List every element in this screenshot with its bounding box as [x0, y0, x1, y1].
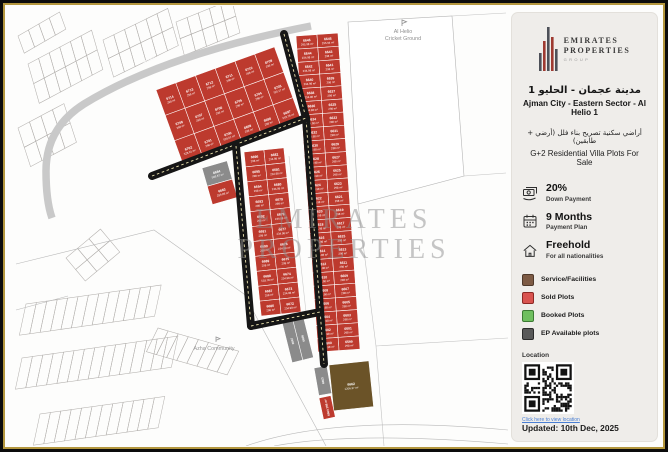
cricket-ground-label: Cricket Ground: [385, 36, 421, 42]
plot-area: 298 m²: [327, 93, 336, 98]
plot-area: 298 m²: [330, 133, 339, 138]
parcel-boundary: [348, 16, 464, 204]
feature-label: Payment Plan: [546, 224, 592, 231]
location-link[interactable]: Click here to view location: [522, 417, 647, 423]
parcel-boundary: [376, 338, 508, 346]
plot-area: 298 m²: [339, 264, 348, 269]
strip-right: 6646295.98 m²6645295.94 m²6644234.98 m²6…: [296, 33, 360, 352]
plot-area: 295.94 m²: [322, 40, 335, 45]
qr-code: [522, 362, 574, 414]
legend-label: Service/Facilities: [541, 276, 596, 283]
legend-item: Sold Plots: [522, 292, 647, 304]
outline-plot-grid: [18, 12, 66, 53]
plot-area: 298 m²: [326, 80, 335, 85]
plot-area: 298 m²: [325, 54, 334, 59]
legend-swatch: [522, 310, 534, 322]
legend-item: Booked Plots: [522, 310, 647, 322]
community-label: Azha Community: [193, 346, 234, 352]
legend-item: Service/Facilities: [522, 274, 647, 286]
upper-pair: 6684598.87 m²6683299.88 m²: [202, 161, 237, 205]
logo-word-properties: PROPERTIES: [564, 46, 631, 56]
plot-area: 298 m²: [341, 291, 350, 296]
feature-value: 20%: [546, 183, 591, 195]
plot-area: 298 m²: [333, 172, 342, 177]
plot-area: 298 m²: [343, 317, 352, 322]
legend-item: EP Available plots: [522, 328, 647, 340]
location-label: Location: [522, 352, 647, 359]
calendar-icon: [522, 213, 538, 229]
legend-label: EP Available plots: [541, 330, 599, 337]
plot-area: 298 m²: [340, 277, 349, 282]
legend-label: Booked Plots: [541, 312, 584, 319]
logo-bars-icon: [539, 27, 559, 71]
community-flag-icon: [216, 337, 220, 342]
bottom-gray: 6663: [314, 366, 332, 396]
parcel-boundary: [464, 173, 506, 176]
title-arabic: مدينة عجمان - الحليو 1: [522, 85, 647, 96]
title-english: Ajman City - Eastern Sector - Al Helio 1: [522, 99, 647, 117]
freehold-icon: [522, 242, 538, 258]
plot-area: 298 m²: [342, 304, 351, 309]
parcel-boundary: [452, 13, 506, 16]
plot-area: 298 m²: [345, 343, 354, 348]
legend-label: Sold Plots: [541, 294, 574, 301]
parcel-boundary: [274, 438, 508, 446]
plot-area: 298 m²: [329, 119, 338, 124]
updated-date: Updated: 10th Dec, 2025: [522, 423, 647, 433]
plot-area: 298 m²: [325, 67, 334, 72]
plot-area: 298 m²: [332, 159, 341, 164]
plot-area: 298 m²: [328, 106, 337, 111]
gray-pair: 66676666: [282, 317, 314, 363]
feature-list: 20%Down Payment9 MonthsPayment PlanFreeh…: [522, 183, 647, 260]
parcel-boundary: [246, 425, 508, 446]
outline-plot-grid: [19, 285, 161, 335]
logo-word-group: GROUP: [564, 57, 631, 62]
logo-word-emirates: EMIRATES: [564, 36, 631, 46]
plot-area: 298 m²: [331, 146, 340, 151]
watermark: EMIRATESPROPERTIES: [237, 204, 450, 265]
map-legend: Service/FacilitiesSold PlotsBooked Plots…: [522, 274, 647, 340]
watermark-text: EMIRATES: [256, 204, 433, 235]
service-plot: 66621206.37 m²: [329, 361, 374, 411]
road-label: Road: [142, 55, 156, 66]
feature-calendar: 9 MonthsPayment Plan: [522, 212, 647, 232]
feature-label: For all nationalities: [546, 253, 603, 260]
plot-area: 234.98 m²: [302, 55, 315, 60]
legend-swatch: [522, 292, 534, 304]
watermark-text: PROPERTIES: [237, 234, 450, 265]
subtitle-arabic: أراضي سكنية تصريح بناء فلل (أرضي + طابقي…: [522, 129, 647, 145]
feature-value: Freehold: [546, 240, 603, 252]
cash-icon: [522, 185, 538, 201]
plot-area: 298 m²: [344, 330, 353, 335]
cricket-ground-label: Al Helio: [394, 29, 413, 35]
feature-freehold: FreeholdFor all nationalities: [522, 240, 647, 260]
subtitle-english: G+2 Residential Villa Plots For Sale: [522, 149, 647, 167]
info-sidebar: EMIRATES PROPERTIES GROUP مدينة عجمان - …: [511, 12, 658, 442]
plot-area: 298 m²: [335, 198, 344, 203]
feature-cash: 20%Down Payment: [522, 183, 647, 203]
parcel-boundary: [16, 230, 244, 294]
legend-swatch: [522, 274, 534, 286]
feature-label: Down Payment: [546, 196, 591, 203]
gold-frame: Road6714298 m²6713298 m²6712298 m²671129…: [3, 3, 665, 449]
outline-plot-grid: [28, 30, 103, 103]
outline-plot-grid: [66, 229, 120, 281]
legend-swatch: [522, 328, 534, 340]
plot-area: 295.98 m²: [301, 42, 314, 47]
emirates-properties-logo: EMIRATES PROPERTIES GROUP: [522, 27, 647, 71]
feature-value: 9 Months: [546, 212, 592, 224]
plot-map: Road6714298 m²6713298 m²6712298 m²671129…: [6, 6, 508, 446]
brochure-page: Road6714298 m²6713298 m²6712298 m²671129…: [0, 0, 668, 452]
map-svg: Road6714298 m²6713298 m²6712298 m²671129…: [6, 6, 508, 446]
parcel-boundary: [16, 296, 68, 310]
plot-area: 298 m²: [334, 185, 343, 190]
outline-plot-grid: [15, 336, 178, 389]
outline-plot-grid: [33, 396, 164, 445]
